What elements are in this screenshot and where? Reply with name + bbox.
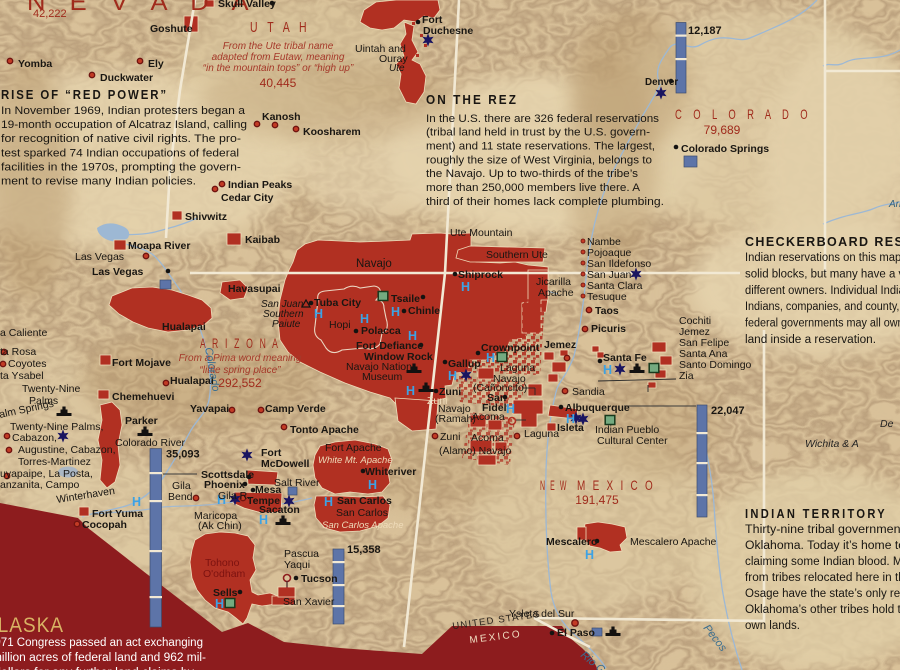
svg-text:M E X I C O: M E X I C O bbox=[577, 477, 655, 493]
svg-text:Paiute: Paiute bbox=[272, 319, 301, 330]
svg-text:roughly the size of West Virgi: roughly the size of West Virginia, belon… bbox=[426, 154, 652, 166]
svg-text:Bend: Bend bbox=[168, 491, 193, 503]
svg-text:Havasupai: Havasupai bbox=[228, 283, 281, 295]
svg-text:Cabazon,: Cabazon, bbox=[12, 432, 57, 444]
svg-text:H: H bbox=[461, 280, 470, 294]
svg-text:from tribes relocated here in: from tribes relocated here in the 1800s. bbox=[745, 572, 900, 584]
svg-text:H: H bbox=[215, 597, 224, 611]
svg-text:12,187: 12,187 bbox=[688, 25, 722, 37]
svg-text:Isleta: Isleta bbox=[557, 422, 584, 434]
svg-text:Gila R.: Gila R. bbox=[218, 490, 250, 502]
svg-text:Sacaton: Sacaton bbox=[259, 504, 300, 516]
svg-text:a Caliente: a Caliente bbox=[0, 327, 47, 339]
svg-text:San Carlos: San Carlos bbox=[336, 507, 388, 519]
svg-text:From the Ute tribal name: From the Ute tribal name bbox=[223, 41, 334, 52]
svg-text:CHECKERBOARD RESERVATIONS: CHECKERBOARD RESERVATIONS bbox=[745, 235, 900, 249]
svg-text:Ute Mountain: Ute Mountain bbox=[450, 227, 513, 239]
svg-text:Shivwitz: Shivwitz bbox=[185, 211, 227, 223]
svg-text:Goshute: Goshute bbox=[150, 23, 193, 35]
svg-text:Ute: Ute bbox=[389, 63, 405, 74]
svg-text:Ely: Ely bbox=[148, 58, 164, 70]
svg-text:H: H bbox=[585, 548, 594, 562]
svg-text:H: H bbox=[132, 495, 141, 509]
svg-text:Ysleta del Sur: Ysleta del Sur bbox=[509, 608, 575, 620]
svg-text:land inside a reservation.: land inside a reservation. bbox=[745, 334, 876, 346]
svg-text:35,093: 35,093 bbox=[166, 449, 200, 461]
svg-text:H: H bbox=[406, 384, 415, 398]
svg-text:Yavapai: Yavapai bbox=[190, 403, 229, 415]
svg-text:(Ak Chin): (Ak Chin) bbox=[198, 520, 242, 532]
svg-text:Thirty-nine tribal governments: Thirty-nine tribal governments are in bbox=[745, 524, 900, 536]
svg-text:40,445: 40,445 bbox=[260, 76, 297, 90]
svg-text:Tuba City: Tuba City bbox=[314, 297, 361, 309]
svg-text:Twenty-Nine: Twenty-Nine bbox=[22, 383, 81, 395]
svg-text:Sells: Sells bbox=[213, 587, 238, 599]
svg-text:Palms: Palms bbox=[29, 395, 58, 407]
svg-text:Zia: Zia bbox=[679, 370, 694, 382]
svg-text:From a Pima word meaning: From a Pima word meaning bbox=[179, 353, 302, 364]
svg-text:Cultural Center: Cultural Center bbox=[597, 435, 668, 447]
svg-text:Duckwater: Duckwater bbox=[100, 72, 153, 84]
svg-text:Torres-Martinez: Torres-Martinez bbox=[18, 456, 91, 468]
svg-text:Kaibab: Kaibab bbox=[245, 234, 280, 246]
svg-text:Apache: Apache bbox=[538, 287, 574, 299]
svg-text:Mescalero Apache: Mescalero Apache bbox=[630, 536, 717, 548]
svg-text:Jemez: Jemez bbox=[544, 339, 576, 351]
svg-text:Koosharem: Koosharem bbox=[303, 126, 361, 138]
svg-text:claiming some Indian blood. Mo: claiming some Indian blood. Most come bbox=[745, 556, 900, 568]
svg-text:Hualapai: Hualapai bbox=[170, 375, 214, 387]
svg-text:Tucson: Tucson bbox=[301, 573, 338, 585]
svg-text:C O L O R A D O: C O L O R A D O bbox=[675, 106, 812, 122]
svg-text:Tonto Apache: Tonto Apache bbox=[290, 424, 359, 436]
svg-text:Oklahoma’s other tribes hold t: Oklahoma’s other tribes hold title to th… bbox=[745, 604, 900, 616]
svg-text:adapted from Eutaw, meaning: adapted from Eutaw, meaning bbox=[212, 52, 345, 63]
svg-text:San Carlos Apache: San Carlos Apache bbox=[322, 520, 404, 531]
svg-text:facilities in the 1970s, promp: facilities in the 1970s, prompting the g… bbox=[1, 161, 241, 173]
svg-text:Colorado River: Colorado River bbox=[115, 437, 186, 449]
svg-text:Arkansas: Arkansas bbox=[888, 199, 900, 210]
svg-text:(tribal land held in trust by: (tribal land held in trust by the U.S. g… bbox=[426, 127, 650, 139]
svg-text:Chemehuevi: Chemehuevi bbox=[112, 391, 175, 403]
svg-text:Southern Ute: Southern Ute bbox=[486, 249, 548, 261]
svg-text:Crownpoint: Crownpoint bbox=[481, 342, 540, 354]
svg-text:Shiprock: Shiprock bbox=[458, 269, 503, 281]
svg-text:Acoma: Acoma bbox=[472, 411, 505, 423]
svg-text:Polacca: Polacca bbox=[361, 325, 401, 337]
svg-text:22,047: 22,047 bbox=[711, 405, 745, 417]
svg-text:San Xavier: San Xavier bbox=[283, 596, 335, 608]
svg-text:Gallup: Gallup bbox=[448, 358, 481, 370]
svg-text:for recognition of native civi: for recognition of native civil rights. … bbox=[1, 133, 241, 145]
svg-text:Laguna: Laguna bbox=[524, 428, 559, 440]
svg-text:15,358: 15,358 bbox=[347, 544, 381, 556]
svg-text:191,475: 191,475 bbox=[575, 493, 619, 507]
svg-text:Denver: Denver bbox=[645, 77, 678, 88]
svg-text:own lands.: own lands. bbox=[745, 620, 800, 632]
svg-text:El Paso: El Paso bbox=[557, 627, 595, 639]
svg-text:N E W: N E W bbox=[540, 477, 568, 493]
svg-text:42,222: 42,222 bbox=[33, 8, 67, 20]
svg-text:Skull Valley: Skull Valley bbox=[218, 0, 276, 10]
svg-text:(Ramah): (Ramah) bbox=[435, 413, 476, 425]
svg-text:O'odham: O'odham bbox=[203, 568, 246, 580]
svg-text:Indians, companies, and county: Indians, companies, and county, state, a… bbox=[745, 301, 900, 313]
svg-text:Mescalero: Mescalero bbox=[546, 536, 597, 548]
svg-text:Colorado Springs: Colorado Springs bbox=[681, 143, 769, 155]
svg-text:Augustine, Cabazon,: Augustine, Cabazon, bbox=[18, 444, 115, 456]
svg-text:Yaqui: Yaqui bbox=[284, 559, 310, 571]
svg-text:different owners. Individual I: different owners. Individual Indians, no… bbox=[745, 285, 900, 297]
svg-text:ON THE REZ: ON THE REZ bbox=[426, 93, 518, 107]
svg-text:19-month occupation of Alcatra: 19-month occupation of Alcatraz Island, … bbox=[1, 119, 247, 131]
svg-text:292,552: 292,552 bbox=[218, 376, 262, 390]
svg-text:Yomba: Yomba bbox=[18, 58, 52, 70]
svg-text:H: H bbox=[506, 402, 515, 416]
svg-text:million acres of federal land: million acres of federal land and 962 mi… bbox=[0, 652, 206, 664]
svg-text:Duchesne: Duchesne bbox=[423, 25, 473, 37]
svg-text:test sparked 74 Indian occupat: test sparked 74 Indian occupations of fe… bbox=[1, 147, 239, 159]
svg-text:RISE OF “RED POWER”: RISE OF “RED POWER” bbox=[1, 88, 168, 102]
svg-text:“in the mountain tops” or “hig: “in the mountain tops” or “high up” bbox=[203, 63, 354, 74]
svg-text:In November 1969, Indian prote: In November 1969, Indian protesters bega… bbox=[1, 105, 246, 117]
svg-text:(Alamo) Navajo: (Alamo) Navajo bbox=[439, 445, 512, 457]
svg-text:U T A H: U T A H bbox=[250, 19, 310, 36]
svg-text:Zuni: Zuni bbox=[440, 431, 460, 443]
svg-text:Parker: Parker bbox=[125, 415, 158, 427]
svg-text:H: H bbox=[448, 369, 457, 383]
svg-text:H: H bbox=[368, 478, 377, 492]
svg-text:Coyotes: Coyotes bbox=[8, 358, 47, 370]
svg-text:San Carlos: San Carlos bbox=[337, 495, 392, 507]
svg-text:Albuquerque: Albuquerque bbox=[565, 402, 630, 414]
svg-text:H: H bbox=[360, 312, 369, 326]
svg-text:Osage have the state’s only re: Osage have the state’s only reservation. bbox=[745, 588, 900, 600]
svg-text:H: H bbox=[314, 307, 323, 321]
svg-text:Tesuque: Tesuque bbox=[587, 291, 627, 303]
svg-text:Fort Mojave: Fort Mojave bbox=[112, 357, 171, 369]
svg-text:ta Rosa: ta Rosa bbox=[0, 346, 36, 358]
svg-text:In the U.S. there are 326 fede: In the U.S. there are 326 federal reserv… bbox=[426, 113, 660, 125]
svg-text:Las Vegas: Las Vegas bbox=[92, 266, 144, 278]
svg-text:Wichita & A: Wichita & A bbox=[805, 438, 859, 450]
svg-text:Sandia: Sandia bbox=[572, 386, 605, 398]
svg-text:Acoma: Acoma bbox=[471, 432, 504, 444]
svg-text:H: H bbox=[324, 495, 333, 509]
svg-text:McDowell: McDowell bbox=[261, 458, 310, 470]
svg-text:Cocopah: Cocopah bbox=[82, 519, 127, 531]
svg-text:the Navajo. Up to two-thirds o: the Navajo. Up to two-thirds of the trib… bbox=[426, 168, 639, 180]
svg-text:anzanita, Campo: anzanita, Campo bbox=[0, 479, 80, 491]
svg-text:INDIAN TERRITORY: INDIAN TERRITORY bbox=[745, 507, 887, 521]
svg-text:H: H bbox=[391, 305, 400, 319]
svg-text:ALASKA: ALASKA bbox=[0, 614, 64, 637]
svg-text:solid blocks, but many have a: solid blocks, but many have a variety of bbox=[745, 268, 900, 280]
svg-text:De: De bbox=[880, 418, 894, 430]
svg-text:Hopi: Hopi bbox=[329, 319, 351, 331]
svg-text:Hualapai: Hualapai bbox=[162, 321, 206, 333]
svg-text:third of their homes lack comp: third of their homes lack complete plumb… bbox=[426, 196, 664, 208]
svg-text:Indian reservations on this ma: Indian reservations on this map look lik… bbox=[745, 252, 900, 264]
svg-text:79,689: 79,689 bbox=[704, 123, 741, 137]
svg-text:Chinle: Chinle bbox=[408, 305, 440, 317]
svg-text:Las Vegas: Las Vegas bbox=[75, 251, 124, 263]
svg-text:ment to revise many Indian pol: ment to revise many Indian policies. bbox=[1, 176, 196, 188]
svg-text:Cedar City: Cedar City bbox=[221, 192, 274, 204]
svg-text:more than 250,000 members live: more than 250,000 members live there. A bbox=[426, 182, 641, 194]
svg-text:Whiteriver: Whiteriver bbox=[365, 466, 416, 478]
svg-text:Kanosh: Kanosh bbox=[262, 111, 301, 123]
svg-text:ta Ysabel: ta Ysabel bbox=[0, 370, 44, 382]
svg-text:White Mt. Apache: White Mt. Apache bbox=[318, 455, 393, 466]
svg-text:Tsaile: Tsaile bbox=[391, 293, 420, 305]
svg-text:Picuris: Picuris bbox=[591, 323, 626, 335]
svg-text:1971 Congress passed an act ex: 1971 Congress passed an act exchanging bbox=[0, 637, 203, 649]
svg-text:Taos: Taos bbox=[595, 305, 619, 317]
svg-text:Salt River: Salt River bbox=[274, 477, 320, 489]
svg-text:Oklahoma. Today it’s home to p: Oklahoma. Today it’s home to people bbox=[745, 540, 900, 552]
svg-text:Camp Verde: Camp Verde bbox=[265, 403, 326, 415]
svg-text:federal governments may all ow: federal governments may all own or lease bbox=[745, 318, 900, 330]
svg-text:Moapa River: Moapa River bbox=[128, 240, 190, 252]
svg-text:Santa Fe: Santa Fe bbox=[603, 352, 647, 364]
svg-text:ment) and 11 state reservation: ment) and 11 state reservations. The lar… bbox=[426, 141, 655, 153]
svg-text:Indian Peaks: Indian Peaks bbox=[228, 179, 292, 191]
svg-text:Navajo: Navajo bbox=[356, 258, 392, 270]
svg-text:H: H bbox=[603, 363, 612, 377]
svg-text:Fort Apache: Fort Apache bbox=[325, 442, 382, 454]
svg-text:Museum: Museum bbox=[362, 371, 403, 383]
